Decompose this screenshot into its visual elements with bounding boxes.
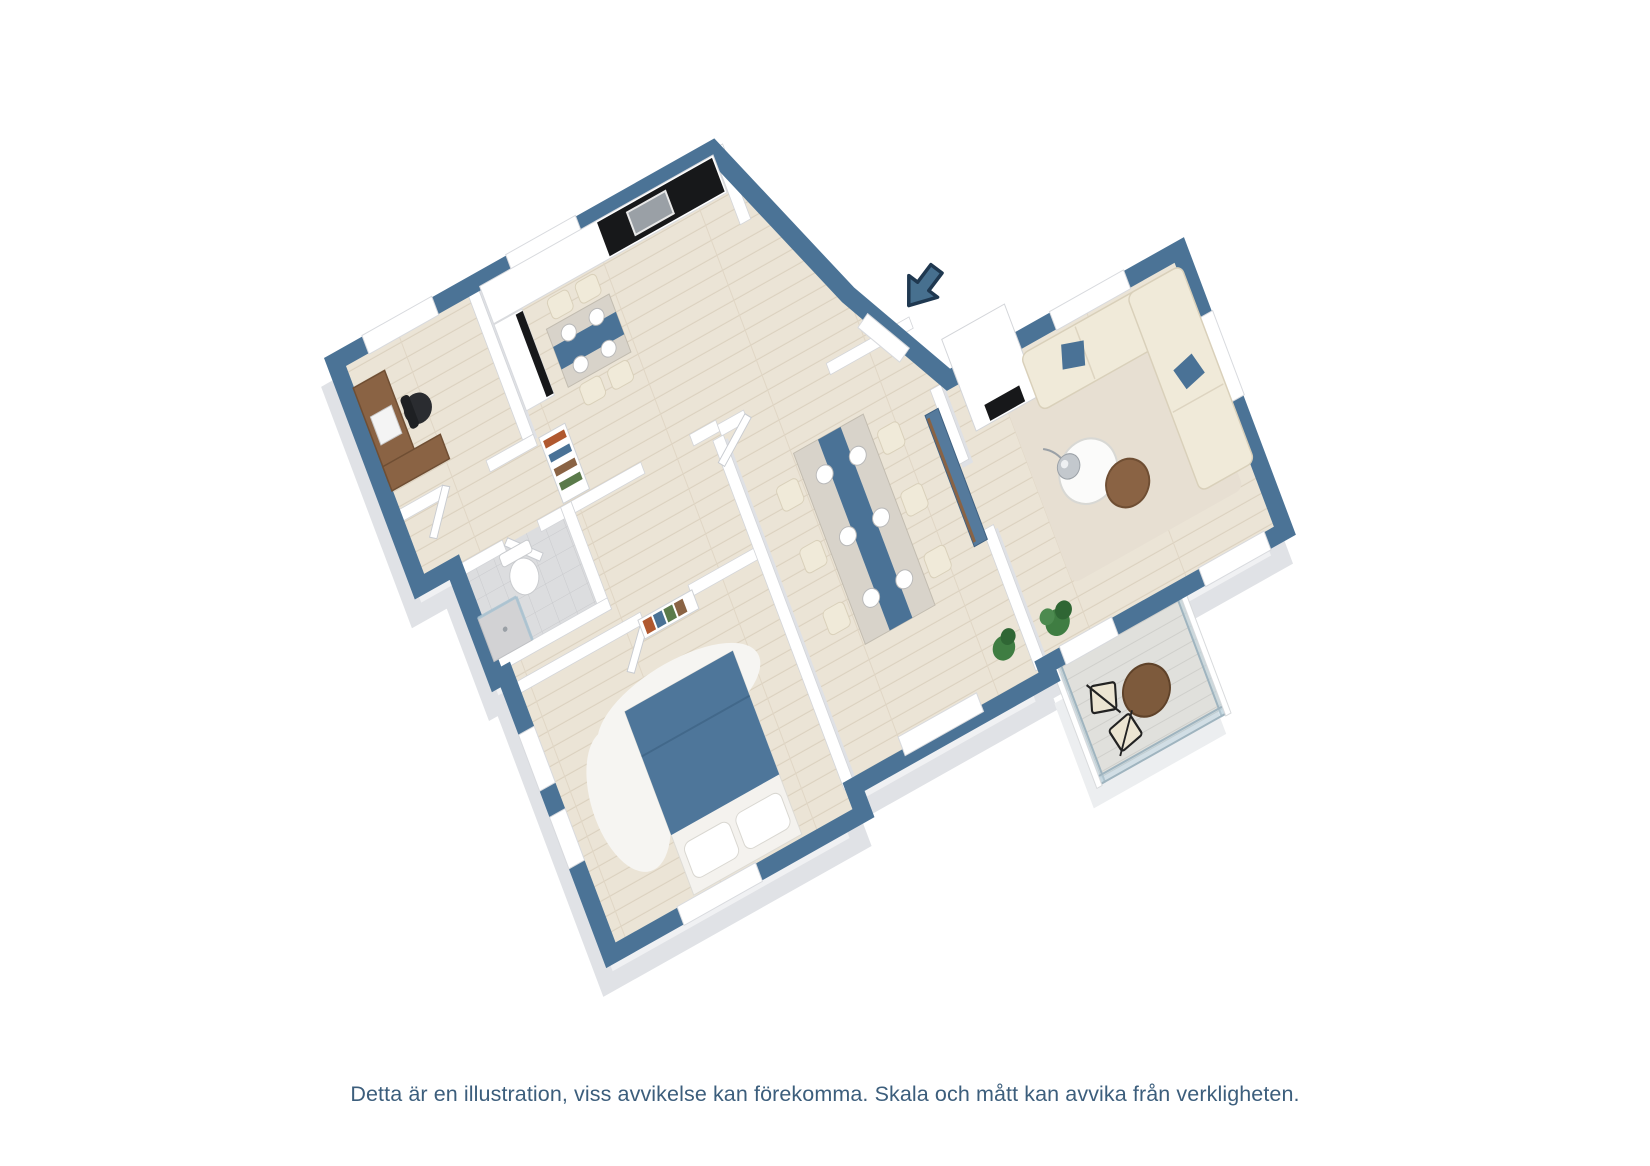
disclaimer-caption: Detta är en illustration, viss avvikelse… [0, 1082, 1650, 1107]
floorplan-illustration: Detta är en illustration, viss avvikelse… [0, 0, 1650, 1166]
floorplan-3d-render [0, 0, 1650, 1166]
entrance-arrow-icon [894, 258, 950, 316]
blue-pillow-1 [1061, 340, 1085, 369]
